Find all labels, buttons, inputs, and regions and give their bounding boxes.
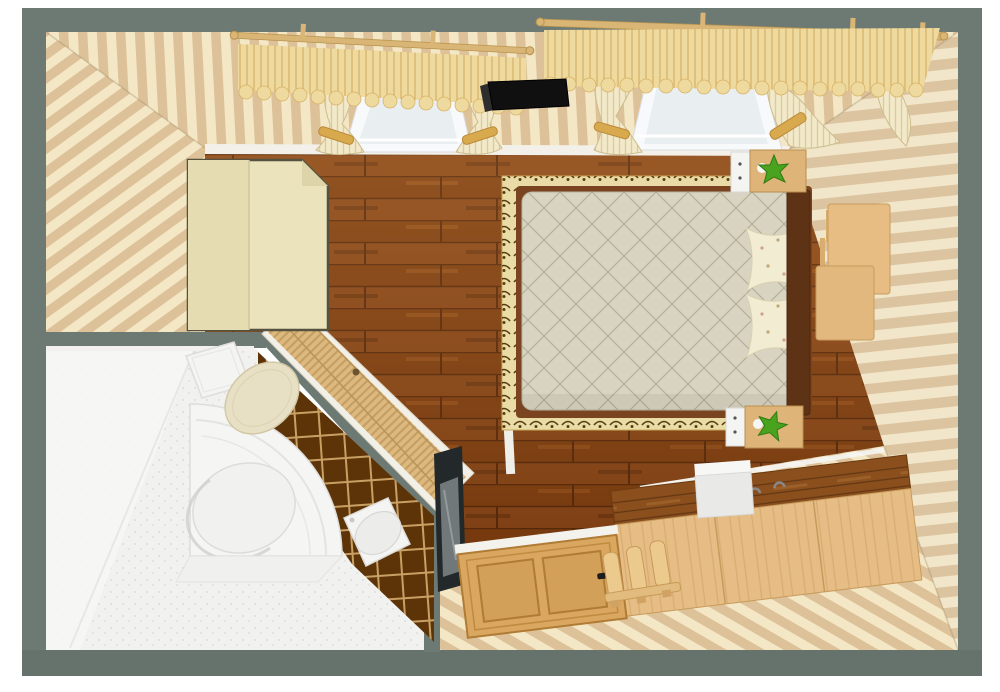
- desk-lower-panel: [816, 266, 874, 340]
- storage-box-front: [695, 472, 754, 518]
- floorplan-svg: [0, 0, 1000, 692]
- bench-foot-2: [636, 595, 646, 603]
- bidet-faucet: [350, 518, 355, 523]
- nightstand-top[interactable]: [731, 150, 806, 192]
- nightstand-bottom-knob-2: [733, 430, 736, 433]
- door-panel-right: [543, 551, 607, 614]
- bathtub-apron: [176, 556, 342, 582]
- wall-cap-right: [958, 8, 982, 676]
- nightstand-bottom[interactable]: [726, 406, 803, 448]
- storage-box[interactable]: [694, 460, 754, 518]
- tv-screen: [488, 79, 569, 110]
- bench-foot-3: [662, 589, 672, 597]
- wall-tv[interactable]: [480, 79, 569, 112]
- headboard: [787, 190, 810, 415]
- nightstand-top-knob-1: [738, 162, 741, 165]
- corner-wardrobe[interactable]: [188, 160, 328, 330]
- door-panel-left: [477, 559, 539, 621]
- nightstand-bottom-knob-1: [733, 416, 736, 419]
- wardrobe-left-door: [188, 160, 249, 330]
- nightstand-top-front: [731, 152, 750, 192]
- floorplan-render: [0, 0, 1000, 692]
- double-bed[interactable]: [516, 186, 812, 418]
- nightstand-bottom-front: [726, 408, 745, 446]
- wall-cap-top: [22, 8, 982, 32]
- wall-cap-bottom: [22, 650, 982, 676]
- bathroom-door-handle: [353, 369, 360, 376]
- nightstand-top-knob-2: [738, 176, 741, 179]
- bench-foot-1: [611, 599, 621, 607]
- entry-door[interactable]: [454, 525, 628, 638]
- bed-group: [502, 176, 812, 430]
